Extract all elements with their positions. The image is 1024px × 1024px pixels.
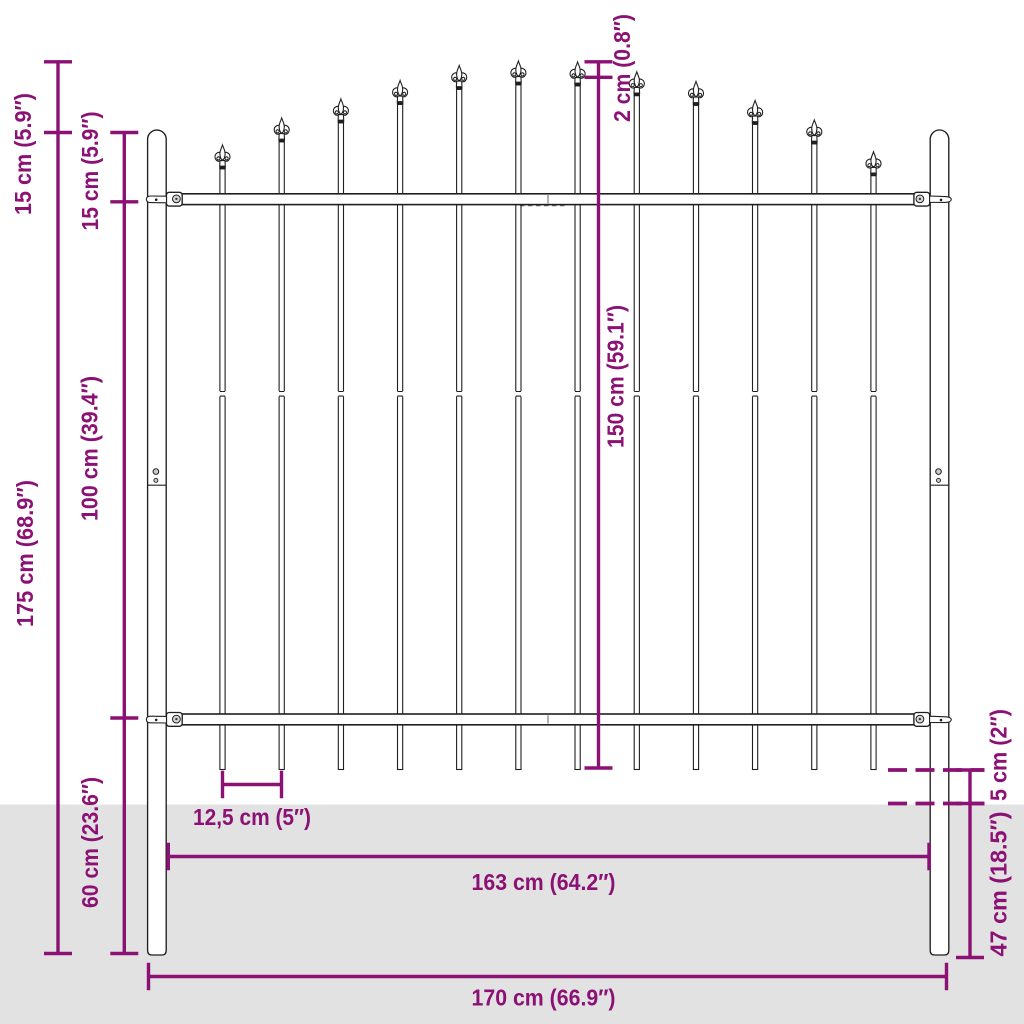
svg-text:60 cm (23.6″): 60 cm (23.6″) xyxy=(77,777,103,908)
svg-text:2 cm (0.8″): 2 cm (0.8″) xyxy=(609,14,635,122)
svg-text:150 cm (59.1″): 150 cm (59.1″) xyxy=(602,305,628,448)
svg-text:170 cm (66.9″): 170 cm (66.9″) xyxy=(472,984,616,1010)
svg-text:15 cm (5.9″): 15 cm (5.9″) xyxy=(10,93,36,215)
svg-text:12,5 cm (5″): 12,5 cm (5″) xyxy=(193,804,311,830)
svg-text:175 cm (68.9″): 175 cm (68.9″) xyxy=(12,480,38,627)
svg-text:15 cm (5.9″): 15 cm (5.9″) xyxy=(77,112,103,231)
svg-text:47 cm (18.5″): 47 cm (18.5″) xyxy=(985,812,1011,957)
svg-text:5 cm (2″): 5 cm (2″) xyxy=(985,709,1011,801)
svg-text:100 cm (39.4″): 100 cm (39.4″) xyxy=(77,376,103,521)
svg-text:163 cm (64.2″): 163 cm (64.2″) xyxy=(472,869,616,895)
